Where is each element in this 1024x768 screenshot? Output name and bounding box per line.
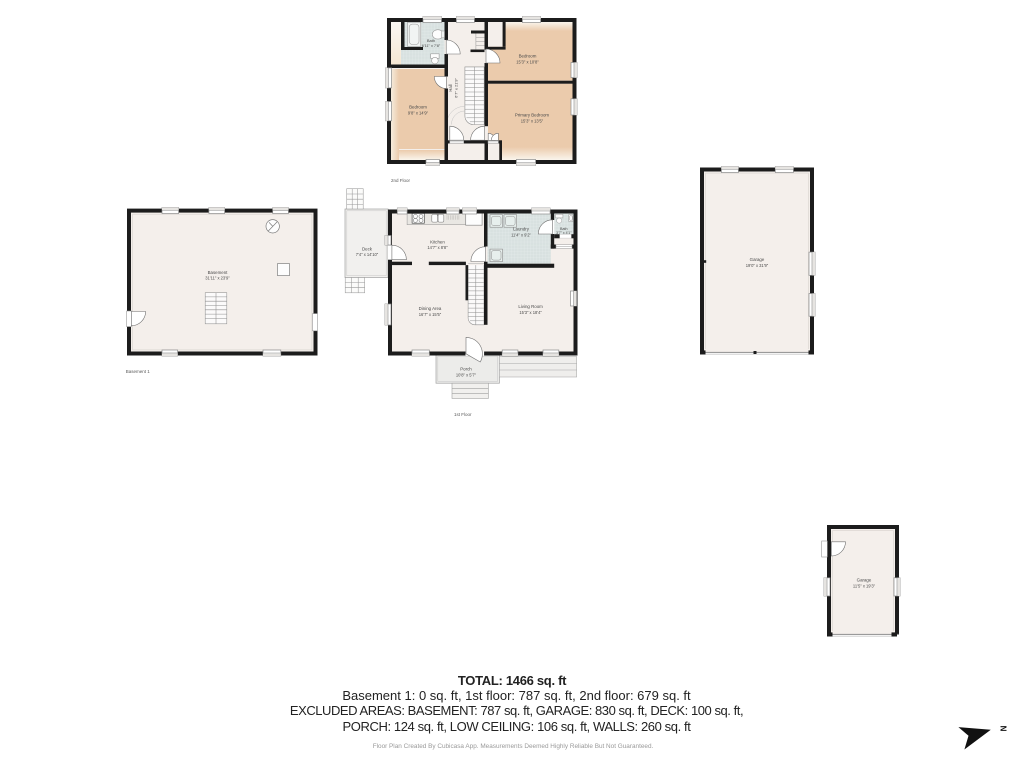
svg-text:11'4" x 9'2": 11'4" x 9'2" <box>511 232 531 237</box>
svg-text:Deck: Deck <box>362 247 373 252</box>
svg-text:Basement: Basement <box>208 270 229 275</box>
svg-text:15'3" x 13'5": 15'3" x 13'5" <box>521 119 544 124</box>
svg-text:Primary Bedroom: Primary Bedroom <box>515 113 550 118</box>
svg-text:Basement 1: Basement 1 <box>126 369 151 374</box>
svg-text:Bath: Bath <box>560 227 568 231</box>
svg-text:Laundry: Laundry <box>513 227 530 232</box>
svg-text:Kitchen: Kitchen <box>430 240 445 245</box>
svg-text:Bedroom: Bedroom <box>409 105 427 110</box>
svg-text:Bedroom: Bedroom <box>519 54 537 59</box>
svg-text:15'3" x 10'8": 15'3" x 10'8" <box>516 59 539 64</box>
svg-text:Porch: Porch <box>460 367 472 372</box>
svg-text:16'7" x 15'5": 16'7" x 15'5" <box>419 312 442 317</box>
svg-text:Garage: Garage <box>857 578 872 583</box>
svg-text:3'7" x 4'1": 3'7" x 4'1" <box>556 231 572 235</box>
svg-text:6'11" x 7'8": 6'11" x 7'8" <box>422 44 441 48</box>
svg-text:1st Floor: 1st Floor <box>454 412 472 417</box>
svg-text:15'3" x 18'4": 15'3" x 18'4" <box>519 310 542 315</box>
svg-text:31'11" x 23'9": 31'11" x 23'9" <box>205 276 230 281</box>
svg-text:14'7" x 8'8": 14'7" x 8'8" <box>427 245 448 250</box>
svg-text:Living Room: Living Room <box>518 304 543 309</box>
svg-text:19'0" x 31'9": 19'0" x 31'9" <box>746 263 769 268</box>
svg-text:Garage: Garage <box>750 257 765 262</box>
svg-text:Hall: Hall <box>448 84 453 91</box>
svg-text:9'8" x 14'9": 9'8" x 14'9" <box>408 111 429 116</box>
svg-text:11'5" x 19'3": 11'5" x 19'3" <box>853 583 876 588</box>
svg-text:7'4" x 14'10": 7'4" x 14'10" <box>356 252 379 257</box>
svg-text:6'7" x 21'9": 6'7" x 21'9" <box>454 78 459 98</box>
svg-text:Bath: Bath <box>427 38 435 43</box>
svg-text:2nd Floor: 2nd Floor <box>391 178 411 183</box>
svg-text:10'8" x 5'7": 10'8" x 5'7" <box>456 372 477 377</box>
svg-text:Dining Area: Dining Area <box>419 306 442 311</box>
